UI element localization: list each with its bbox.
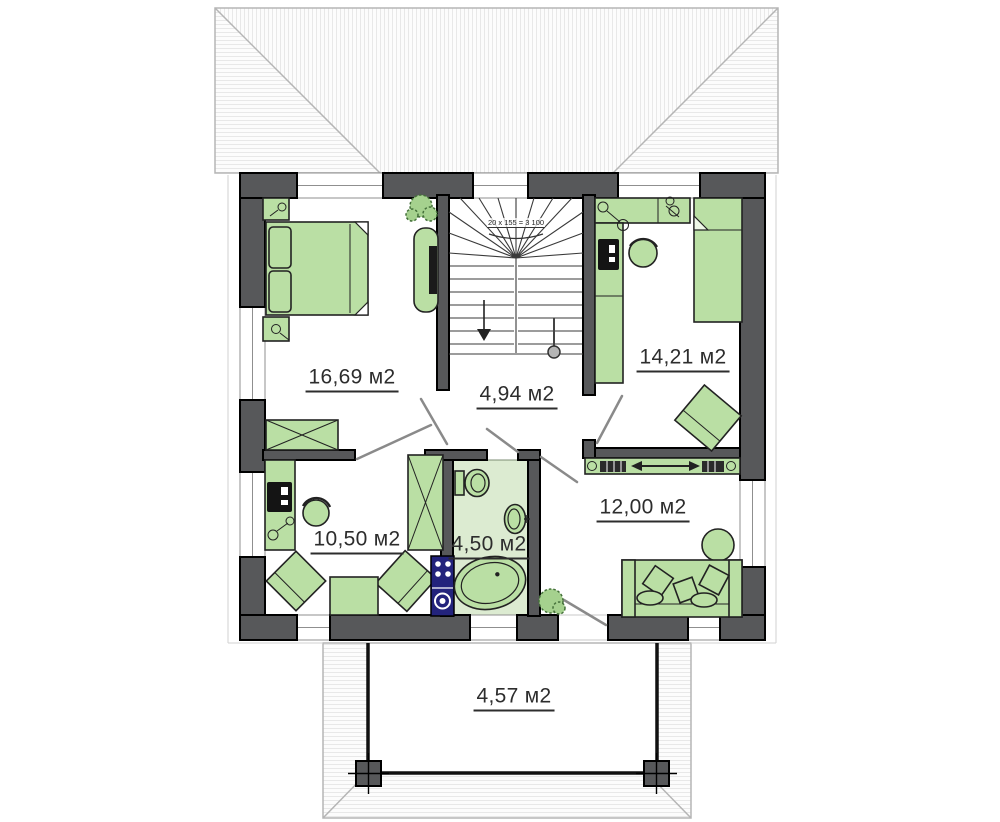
room-area-label-stair-hall: 4,94 м2 [477,383,558,410]
wall-segment [595,448,740,458]
pillow [269,227,291,268]
room-area-label-bathroom: 4,50 м2 [449,533,530,560]
monitor-icon [267,482,292,512]
sofa-armrest [622,560,635,617]
wall-segment [330,615,470,640]
stair-dimension-note: 20 x 155 = 3 100 [487,218,545,228]
balcony-door-opening [558,615,608,640]
wall-segment [583,440,595,458]
roof-porch [323,643,691,818]
wardrobe [266,420,338,450]
wall-segment [518,450,540,460]
chair [303,498,330,526]
wall-segment [700,173,765,198]
room-area-label-bedroom-top-right: 14,21 м2 [637,346,730,373]
window [240,472,265,557]
single-bed [694,198,742,322]
room-area-label-bedroom-top-left: 16,69 м2 [306,366,399,393]
window [297,615,330,640]
wall-segment [608,615,688,640]
wall-stair-right [583,195,595,395]
sofa-cushion [637,591,663,605]
wall-segment [528,173,618,198]
roof-top [215,8,778,173]
washer-dryer-icon [431,556,454,616]
window [240,307,265,400]
wall-segment [263,450,355,460]
wall-segment [383,173,473,198]
tv-icon [429,246,437,294]
window [470,615,517,640]
wall-segment [240,400,265,472]
monitor-icon [598,239,619,270]
sofa-cushion [691,593,717,607]
wardrobe [408,455,443,550]
floor-plan-page: 16,69 м2 4,94 м2 14,21 м2 10,50 м2 4,50 … [0,0,1000,822]
stair-newel-post [548,346,560,358]
wall-segment [240,173,297,198]
window [740,480,765,567]
desk-top [595,198,690,223]
pillow [269,271,291,312]
window [297,173,383,198]
window [473,173,528,198]
chair [629,239,657,267]
wall-segment [240,615,297,640]
sofa [622,560,742,617]
wall-bathroom-right [528,460,540,616]
table [330,577,378,615]
pouf [702,529,734,561]
wall-segment [517,615,558,640]
sofa-armrest [729,560,742,617]
wall-segment [720,615,765,640]
toilet-icon [455,470,489,497]
room-area-label-room-bottom-right: 12,00 м2 [597,496,690,523]
wall-segment [740,173,765,480]
room-area-label-balcony: 4,57 м2 [474,685,555,712]
window [688,615,720,640]
window [618,173,700,198]
room-area-label-room-bottom-left: 10,50 м2 [311,528,404,555]
sliding-wardrobe [585,458,740,474]
